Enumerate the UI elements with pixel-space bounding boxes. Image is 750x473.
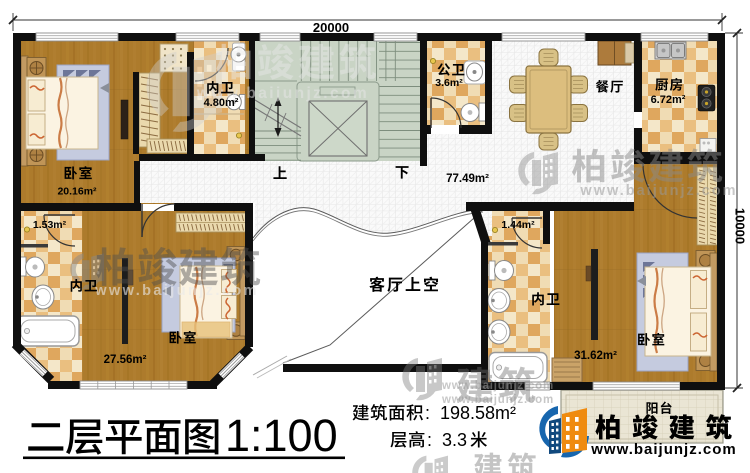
svg-text:: 3.3: : 3.3	[427, 430, 467, 450]
svg-text:1:100: 1:100	[225, 410, 338, 461]
svg-text:3.6m²: 3.6m²	[435, 77, 463, 89]
svg-text:www.baijunjz.com: www.baijunjz.com	[441, 380, 554, 392]
svg-text:: 198.58m²: : 198.58m²	[425, 403, 516, 423]
svg-text:www.baijunjz.com: www.baijunjz.com	[94, 283, 259, 299]
svg-text:27.56m²: 27.56m²	[104, 354, 147, 366]
svg-text:31.62m²: 31.62m²	[574, 350, 617, 362]
svg-text:6.72m²: 6.72m²	[651, 94, 686, 106]
svg-text:20000: 20000	[313, 20, 349, 35]
svg-text:1.44m²: 1.44m²	[501, 219, 535, 231]
svg-text:20.16m²: 20.16m²	[57, 186, 97, 198]
svg-text:www.baijunjz.com: www.baijunjz.com	[590, 441, 736, 458]
svg-text:1.53m²: 1.53m²	[33, 219, 67, 231]
svg-text:77.49m²: 77.49m²	[446, 173, 489, 185]
svg-text:www.baijunjz.com: www.baijunjz.com	[579, 183, 737, 199]
svg-text:4.80m²: 4.80m²	[204, 97, 239, 109]
svg-text:10000: 10000	[733, 208, 748, 244]
